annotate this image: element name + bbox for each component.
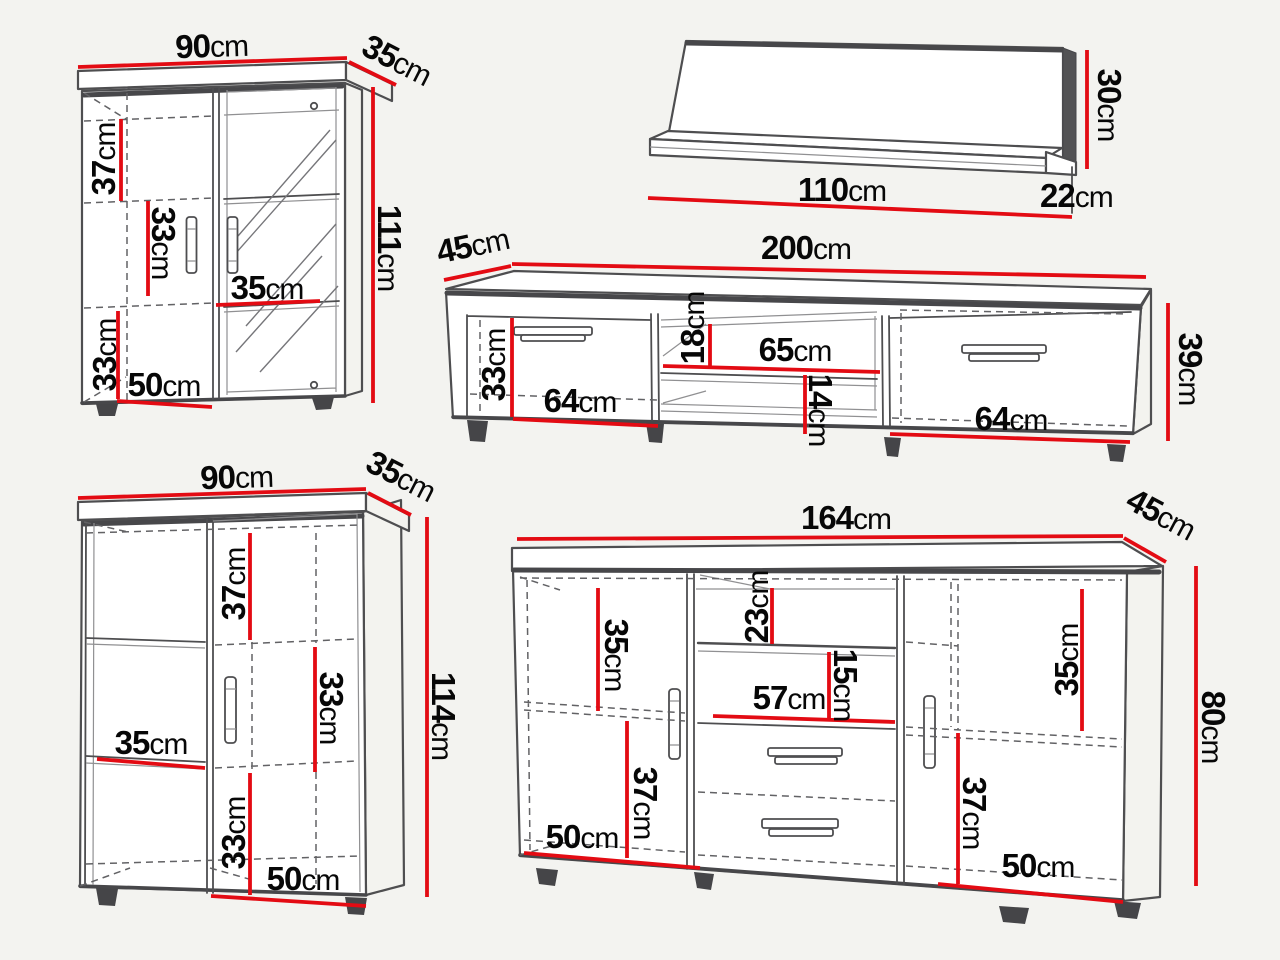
width-label: 90cm	[200, 457, 274, 497]
sideboard-foot	[694, 872, 714, 890]
inner-right-top-label: 35cm	[1048, 624, 1085, 697]
inner-left-height-label: 33cm	[475, 329, 512, 402]
display-cabinet-body	[78, 62, 392, 416]
inner-niche-bottom-label: 14cm	[802, 374, 839, 447]
tv-stand-foot	[1107, 444, 1126, 462]
highboard-foot	[96, 888, 118, 906]
sideboard-foot	[536, 868, 558, 886]
cabinet-foot	[96, 404, 118, 416]
furniture-dimensions-page: 90cm 35cm 111cm 37cm 33cm 35cm 33cm 50cm…	[0, 0, 1280, 960]
inner-left-base-label: 50cm	[546, 818, 619, 855]
inner-niche-width-label: 57cm	[753, 679, 826, 716]
inner-niche-height-label: 18cm	[674, 292, 711, 365]
inner-right-width-label: 64cm	[975, 400, 1048, 437]
height-label: 39cm	[1172, 333, 1209, 406]
width-label: 200cm	[761, 229, 851, 266]
width-label: 164cm	[801, 499, 891, 536]
depth-label: 22cm	[1040, 177, 1113, 214]
door-handle	[225, 677, 236, 743]
wall-shelf-side-edge	[1063, 48, 1076, 166]
inner-mid-label: 33cm	[313, 672, 350, 745]
inner-left-bottom-label: 37cm	[627, 767, 664, 840]
inner-bottom-label: 33cm	[86, 319, 123, 392]
inner-top-label: 37cm	[215, 548, 252, 621]
inner-mid-label: 33cm	[145, 207, 182, 280]
height-label: 80cm	[1195, 691, 1232, 764]
width-label: 90cm	[175, 26, 249, 66]
inner-right-bottom-label: 37cm	[956, 777, 993, 850]
sideboard-top	[512, 542, 1162, 571]
inner-niche-width-label: 65cm	[759, 331, 832, 368]
inner-niche-mid-label: 15cm	[827, 649, 864, 722]
height-label: 30cm	[1091, 69, 1128, 142]
sideboard-foot	[1114, 901, 1141, 919]
width-label: 110cm	[798, 171, 886, 208]
height-label: 111cm	[371, 205, 408, 291]
inner-base-label: 50cm	[128, 366, 201, 403]
height-label: 114cm	[425, 672, 462, 760]
inner-shelf-label: 35cm	[231, 269, 304, 306]
inner-right-base-label: 50cm	[1002, 847, 1075, 884]
sideboard-foot	[999, 906, 1029, 924]
sideboard: 164cm 45cm 80cm 35cm 23cm 15cm 57cm 37cm…	[512, 480, 1232, 924]
inner-left-width-label: 64cm	[544, 382, 617, 419]
inner-niche-top-label: 23cm	[738, 571, 775, 644]
furniture-dimensions-diagram: 90cm 35cm 111cm 37cm 33cm 35cm 33cm 50cm…	[0, 0, 1280, 960]
inner-shelf-label: 35cm	[115, 724, 188, 761]
inner-bottom-label: 33cm	[215, 797, 252, 870]
tv-stand-foot	[467, 420, 488, 442]
inner-left-top-label: 35cm	[598, 619, 635, 692]
inner-base-label: 50cm	[267, 860, 340, 897]
inner-top-label: 37cm	[85, 123, 122, 196]
